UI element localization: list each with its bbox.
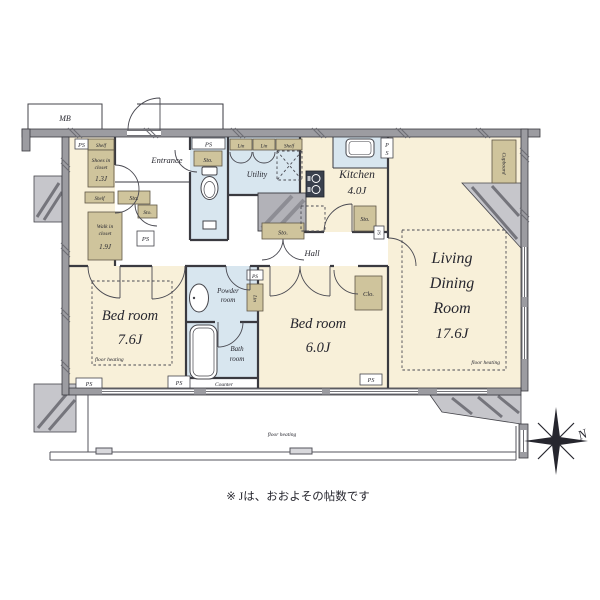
living-size: 17.6J [436, 326, 470, 342]
hall-label: Hall [303, 248, 320, 258]
sto-label-2: Sto. [143, 210, 151, 216]
shoes-closet-size: 1.3J [95, 175, 108, 183]
sto-label-kitchen: Sto. [360, 217, 369, 223]
window-right-1 [522, 247, 528, 297]
kitchen-size: 4.0J [348, 185, 368, 197]
lin-label-1: Lin [237, 145, 245, 150]
window-bottom-living [437, 389, 487, 395]
bedroom2-size: 6.0J [306, 340, 331, 356]
compass: N [524, 407, 590, 475]
entrance-porch-line [137, 104, 223, 129]
entrance-label: Entrance [150, 155, 182, 165]
pillar-bottom-right [430, 395, 521, 424]
window-bottom-2 [206, 389, 322, 395]
utility-label: Utility [247, 170, 268, 179]
left-wall [62, 137, 69, 395]
balcony-post-1 [96, 448, 112, 454]
compass-spike-left [524, 437, 556, 446]
sto-label-toilet: Sto. [203, 158, 212, 164]
sto-label-1: Sto. [129, 196, 138, 202]
ps-label-1: PS [77, 143, 85, 149]
shelf-label-2: Shelf [95, 197, 106, 202]
bathtub [190, 325, 217, 379]
shoes-closet-line1: Shoes in [92, 158, 111, 164]
sto-label-center: Sto. [278, 230, 288, 237]
compass-spike-up [552, 407, 561, 441]
ps-label-9: PS [175, 381, 183, 387]
top-wall-left-stub [22, 129, 30, 151]
ps-label-6: PS [377, 229, 382, 236]
floor-heating-label-living: floor heating [471, 359, 500, 366]
kitchen-sink [346, 139, 374, 157]
shelf-label-1: Shelf [96, 144, 107, 149]
ps-label-4: PS [141, 236, 150, 243]
floor-plan-page: N MB PS Shelf Shoes in closet 1.3J Shelf… [0, 0, 600, 600]
living-line1: Living [431, 250, 473, 267]
shoes-closet-line2: closet [95, 165, 108, 171]
entrance-door [128, 98, 160, 130]
window-bottom-3 [330, 389, 418, 395]
walkin-closet-size: 1.9J [99, 243, 112, 251]
cupboard-label: Cupboard [501, 152, 507, 174]
lin-label-powder: Lin [252, 294, 257, 302]
powder-line1: Powder [216, 287, 239, 295]
ps-label-5: PS [251, 274, 258, 280]
top-wall [22, 129, 540, 137]
living-line2: Dining [429, 275, 474, 292]
walkin-closet-line1: Walk in [97, 224, 114, 230]
lin-label-2: Lin [260, 145, 268, 150]
floor-heating-label-bedroom1: floor heating [95, 356, 124, 363]
powder-sink [190, 284, 209, 312]
bath-line2: room [230, 355, 245, 363]
bath-line1: Bath [230, 345, 244, 353]
stove [306, 171, 324, 197]
powder-line2: room [221, 296, 236, 304]
walkin-closet-line2: closet [99, 231, 112, 237]
living-line3: Room [432, 300, 470, 317]
balcony-post-2 [290, 448, 312, 454]
ps-label-3a: P [384, 143, 389, 149]
clo-label: Clo. [363, 291, 374, 298]
compass-spike-down [552, 441, 561, 475]
window-right-2 [522, 307, 528, 359]
ps-label-7: PS [367, 378, 375, 384]
ps-label-8: PS [85, 382, 93, 388]
footnote: ※ Jは、おおよその帖数です [226, 489, 370, 503]
bedroom1-size: 7.6J [118, 332, 143, 348]
meter-box-label: MB [58, 114, 71, 123]
floor-plan-drawing: N MB PS Shelf Shoes in closet 1.3J Shelf… [0, 0, 600, 600]
shelf-label-3: Shelf [284, 145, 295, 150]
bedroom1-label: Bed room [102, 308, 158, 324]
window-bottom-1 [102, 389, 194, 395]
ps-label-2: PS [204, 142, 213, 149]
counter-label: Counter [215, 382, 234, 388]
bedroom1-floor [69, 266, 186, 388]
kitchen-label: Kitchen [338, 169, 375, 181]
ps-label-3b: S [386, 151, 389, 157]
floor-heating-label-balcony: floor heating [268, 431, 297, 438]
bedroom2-label: Bed room [290, 316, 346, 332]
